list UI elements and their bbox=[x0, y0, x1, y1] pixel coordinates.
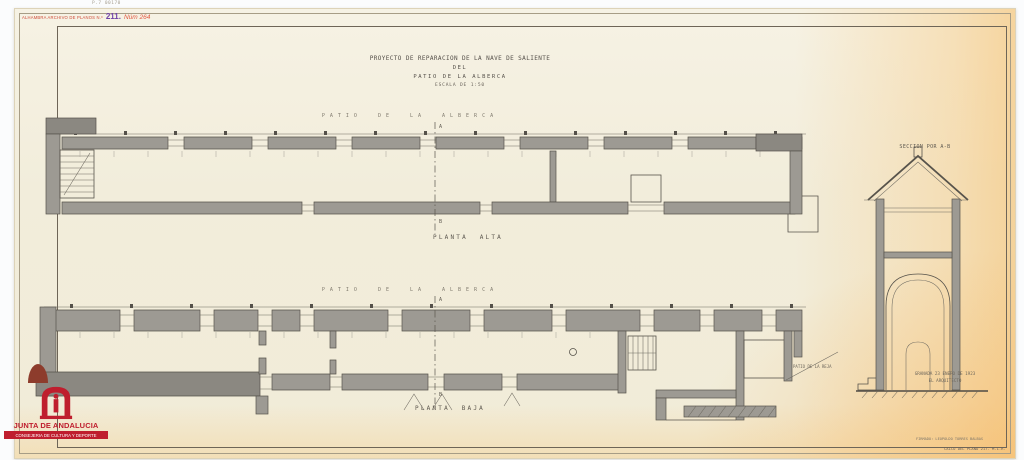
lower-plan-drawing bbox=[36, 296, 838, 420]
section-marker-a-upper: A bbox=[439, 124, 442, 130]
section-drawing bbox=[856, 147, 988, 398]
patio-alberca-label-upper: PATIO DE LA ALBERCA bbox=[310, 113, 510, 119]
upper-plan-drawing bbox=[46, 118, 818, 234]
patio-reja-label: PATIO DE LA REJA bbox=[793, 364, 832, 369]
junta-emblem-icon bbox=[38, 384, 74, 420]
planta-baja-caption: PLANTA BAJA bbox=[380, 405, 520, 412]
title-block: PROYECTO DE REPARACION DE LA NAVE DE SAL… bbox=[330, 55, 590, 88]
catalog-note: CALCO DEL PLANO 217. M.L.R. bbox=[944, 446, 1006, 451]
stamp-handwritten-number: Núm 264 bbox=[124, 14, 150, 21]
stamp-plan-number: 211. bbox=[106, 12, 121, 21]
section-marker-a-lower: A bbox=[439, 297, 442, 303]
junta-org-name: JUNTA DE ANDALUCIA bbox=[4, 421, 108, 430]
project-title-line1: PROYECTO DE REPARACION DE LA NAVE DE SAL… bbox=[330, 55, 590, 62]
project-title-line2: DEL bbox=[330, 65, 590, 71]
signature-role-line: EL ARQUITECTO bbox=[903, 377, 987, 384]
patio-alberca-label-lower: PATIO DE LA ALBERCA bbox=[310, 287, 510, 293]
signature-block: GRANADA 23 ENERO DE 1923 EL ARQUITECTO bbox=[903, 370, 987, 384]
section-marker-b-upper: B bbox=[439, 219, 442, 225]
firmado-note: FIRMADO: LEOPOLDO TORRES BALBAS bbox=[912, 437, 987, 441]
project-title-line3: PATIO DE LA ALBERCA bbox=[330, 74, 590, 80]
scanned-plan-page: P.7 00170 bbox=[0, 0, 1024, 460]
junta-dept-name: CONSEJERIA DE CULTURA Y DEPORTE bbox=[4, 431, 108, 439]
signature-date-line: GRANADA 23 ENERO DE 1923 bbox=[903, 370, 987, 377]
section-view-caption: SECCION POR A-B bbox=[875, 144, 975, 150]
planta-alta-caption: PLANTA ALTA bbox=[398, 234, 538, 241]
stamp-label: ALHAMBRA ARCHIVO DE PLANOS N.º bbox=[22, 15, 103, 20]
junta-logo: JUNTA DE ANDALUCIA CONSEJERIA DE CULTURA… bbox=[4, 384, 108, 439]
archive-stamp: ALHAMBRA ARCHIVO DE PLANOS N.º 211. Núm … bbox=[22, 12, 150, 21]
scale-note: ESCALA DE 1:50 bbox=[330, 83, 590, 88]
section-marker-b-lower: B bbox=[439, 392, 442, 398]
